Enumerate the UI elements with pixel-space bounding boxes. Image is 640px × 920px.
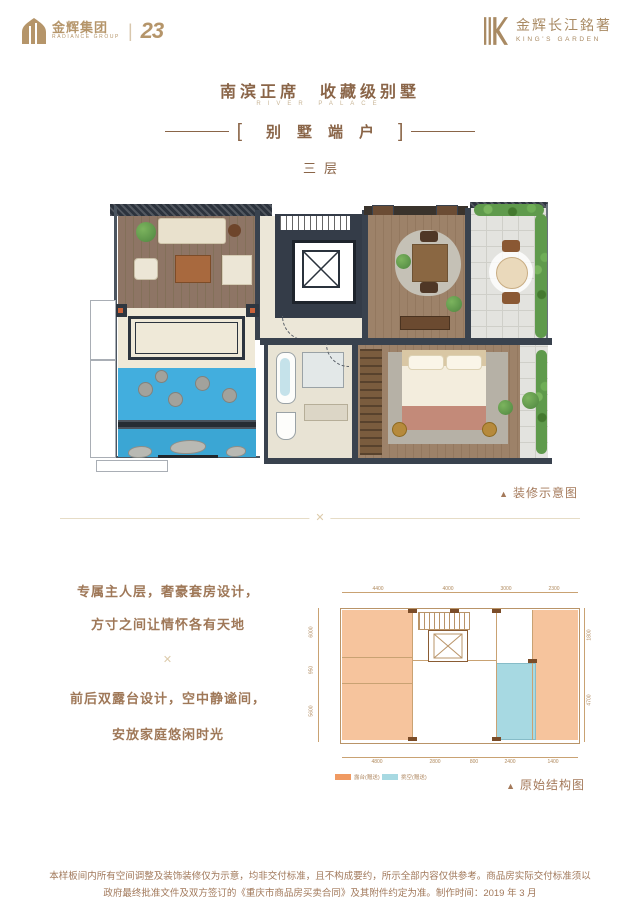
wall-nub [528, 659, 537, 663]
main-title-en: RIVER PALACE [0, 101, 640, 107]
balcony-outline [90, 360, 116, 458]
legend-label: 挑空(赠送) [401, 773, 427, 781]
void-area [496, 663, 536, 740]
wall-nub [450, 609, 459, 613]
elevator-x-icon [428, 630, 468, 662]
framed-room-floor [118, 308, 255, 368]
terrace-chair [502, 240, 520, 252]
pillow [408, 355, 444, 370]
dimension-label: 1400 [547, 760, 558, 765]
interior-wall [342, 683, 412, 684]
post-inlay [250, 308, 255, 313]
copy-line: 专属主人层，奢豪套房设计， [40, 581, 296, 600]
disclaimer-line: 政府最终批准文件及双方签订的《重庆市商品房买卖合同》及其附件约定为准。制作时间：… [20, 885, 620, 902]
dimension-label: 4800 [371, 760, 382, 765]
terrace-area-front [342, 610, 412, 740]
bathtub [276, 352, 296, 404]
dimension-label: 800 [470, 760, 478, 765]
legend-swatch-cyan [382, 774, 398, 780]
interior-wall [342, 657, 412, 658]
structural-plan-caption-text: 原始结构图 [520, 778, 585, 792]
dimension-label: 3000 [500, 587, 511, 592]
tea-room-plant [446, 296, 462, 312]
wall-nub [408, 737, 417, 741]
dimension-label: 2400 [504, 760, 515, 765]
foot-stool [392, 422, 407, 437]
marketing-copy: 专属主人层，奢豪套房设计， 方寸之间让情怀各有天地 ✕ 前后双露台设计，空中静谧… [40, 581, 296, 751]
radiance-logo-text: 金辉集团 RADIANCE GROUP [52, 21, 120, 41]
decorated-plan-caption-text: 装修示意图 [513, 486, 578, 500]
sofa [158, 218, 226, 244]
divider-x-ornament: ✕ [309, 511, 330, 524]
disclaimer: 本样板间内所有空间调整及装饰装修仅为示意，均非交付标准，且不构成要约，所示全部内… [20, 868, 620, 902]
foot-stool [482, 422, 497, 437]
dimension-line-right [584, 608, 585, 742]
legend-swatch-orange [335, 774, 351, 780]
bracket-right: ] [398, 122, 403, 141]
dimension-label: 2300 [548, 587, 559, 592]
floor-cushion [222, 255, 252, 285]
dimension-label: 4000 [442, 587, 453, 592]
dimension-label: 950 [310, 666, 315, 674]
brochure-page: 金辉集团 RADIANCE GROUP | 23 金辉长江銘著 KING'S G… [0, 0, 640, 920]
structural-plan-caption: ▲原始结构图 [506, 776, 585, 793]
unit-type-row: [ 别墅端户 ] [0, 121, 640, 142]
radiance-logo-en: RADIANCE GROUP [52, 34, 120, 41]
wall-nub [492, 737, 501, 741]
terrace-bush [522, 392, 539, 409]
dimension-line-left [318, 608, 319, 742]
copy-line: 前后双露台设计，空中静谧间， [40, 688, 296, 707]
dimension-line-top [342, 592, 578, 593]
toilet [276, 412, 296, 440]
wall-post [246, 304, 259, 317]
interior-wall [412, 610, 413, 740]
terrace-table [496, 257, 528, 289]
kings-garden-cn: 金辉长江銘著 [516, 19, 612, 35]
rule-right [411, 131, 475, 132]
step-outline [96, 460, 168, 472]
legend-item-terrace: 露台(赠送) [335, 773, 380, 781]
kings-garden-k-icon [484, 16, 508, 46]
bathtub-water [280, 358, 290, 396]
dimension-label: 2800 [429, 760, 440, 765]
terrace-hedge-top [474, 204, 544, 216]
floor-label: 三层 [0, 158, 640, 177]
wall-mid-horizontal [260, 338, 552, 345]
stepping-stone [138, 382, 153, 397]
decorated-plan-caption: ▲装修示意图 [499, 484, 578, 501]
tea-chair-south [420, 282, 438, 293]
interior-wall [532, 610, 533, 740]
radiance-logo-cn: 金辉集团 [52, 21, 120, 34]
structural-floor-plan: 4400 4000 3000 2300 4800 2800 800 2400 1… [300, 585, 595, 785]
dimension-label: 5600 [310, 705, 315, 716]
anniversary-23-mark: 23 [141, 18, 163, 44]
disclaimer-line: 本样板间内所有空间调整及装饰装修仅为示意，均非交付标准，且不构成要约，所示全部内… [20, 868, 620, 885]
post-inlay [118, 308, 123, 313]
eave-hatch-top-left [110, 204, 272, 216]
wardrobe [360, 349, 382, 455]
terrace-area-rear [532, 610, 578, 740]
section-divider: ✕ [60, 518, 580, 519]
wall-nub [492, 609, 501, 613]
copy-x-ornament: ✕ [40, 653, 296, 666]
interior-wall [496, 610, 497, 740]
tea-table [412, 244, 448, 282]
legend-item-void: 挑空(赠送) [382, 773, 427, 781]
stepping-stone [195, 376, 210, 391]
elevator-shaft [292, 240, 356, 304]
stepping-stone [155, 370, 168, 383]
console-table [400, 316, 450, 330]
radiance-house-icon [22, 18, 46, 44]
potted-plant [136, 222, 156, 242]
dimension-label: 4400 [372, 587, 383, 592]
unit-type-label: 别墅端户 [250, 121, 390, 142]
tea-room-plant [396, 254, 411, 269]
stepping-stone [222, 388, 237, 403]
tea-chair-north [420, 231, 438, 242]
vanity [304, 404, 348, 421]
terrace-hedge-right [535, 214, 547, 338]
coffee-table [175, 255, 211, 283]
elevator-x-icon [295, 243, 347, 295]
bed [402, 366, 486, 408]
bed-blanket [402, 406, 486, 430]
triangle-marker-icon: ▲ [506, 781, 516, 791]
wall-nub [408, 609, 417, 613]
balcony-outline [90, 300, 116, 360]
legend-label: 露台(赠送) [354, 773, 380, 781]
decorated-floor-plan [100, 200, 548, 472]
dimension-line-bottom [342, 757, 578, 758]
logo-divider: | [128, 21, 133, 42]
kings-garden-text: 金辉长江銘著 KING'S GARDEN [516, 19, 612, 44]
stepping-stone [168, 392, 183, 407]
copy-line: 方寸之间让情怀各有天地 [40, 614, 296, 633]
copy-line: 安放家庭悠闲时光 [40, 724, 296, 743]
rule-left [165, 131, 229, 132]
bedroom-plant [498, 400, 513, 415]
wall-bottom [264, 458, 552, 464]
kings-garden-en: KING'S GARDEN [516, 35, 612, 44]
pillow [446, 355, 482, 370]
stairs [280, 216, 350, 230]
kings-garden-logo: 金辉长江銘著 KING'S GARDEN [484, 16, 612, 46]
radiance-logo: 金辉集团 RADIANCE GROUP | 23 [22, 18, 163, 44]
boardwalk [118, 420, 256, 429]
main-title: 南滨正席 收藏级别墅 [0, 78, 640, 102]
dimension-label: 4700 [588, 694, 593, 705]
bracket-left: [ [237, 122, 242, 141]
structural-elevator [428, 630, 468, 662]
dimension-label: 1800 [588, 629, 593, 640]
armchair [134, 258, 158, 280]
plank-path [158, 455, 218, 458]
structural-stairs [418, 612, 470, 630]
terrace-chair [502, 292, 520, 304]
dimension-label: 6000 [310, 626, 315, 637]
triangle-marker-icon: ▲ [499, 489, 509, 499]
side-table [228, 224, 241, 237]
framed-room-inner-border [135, 322, 238, 354]
